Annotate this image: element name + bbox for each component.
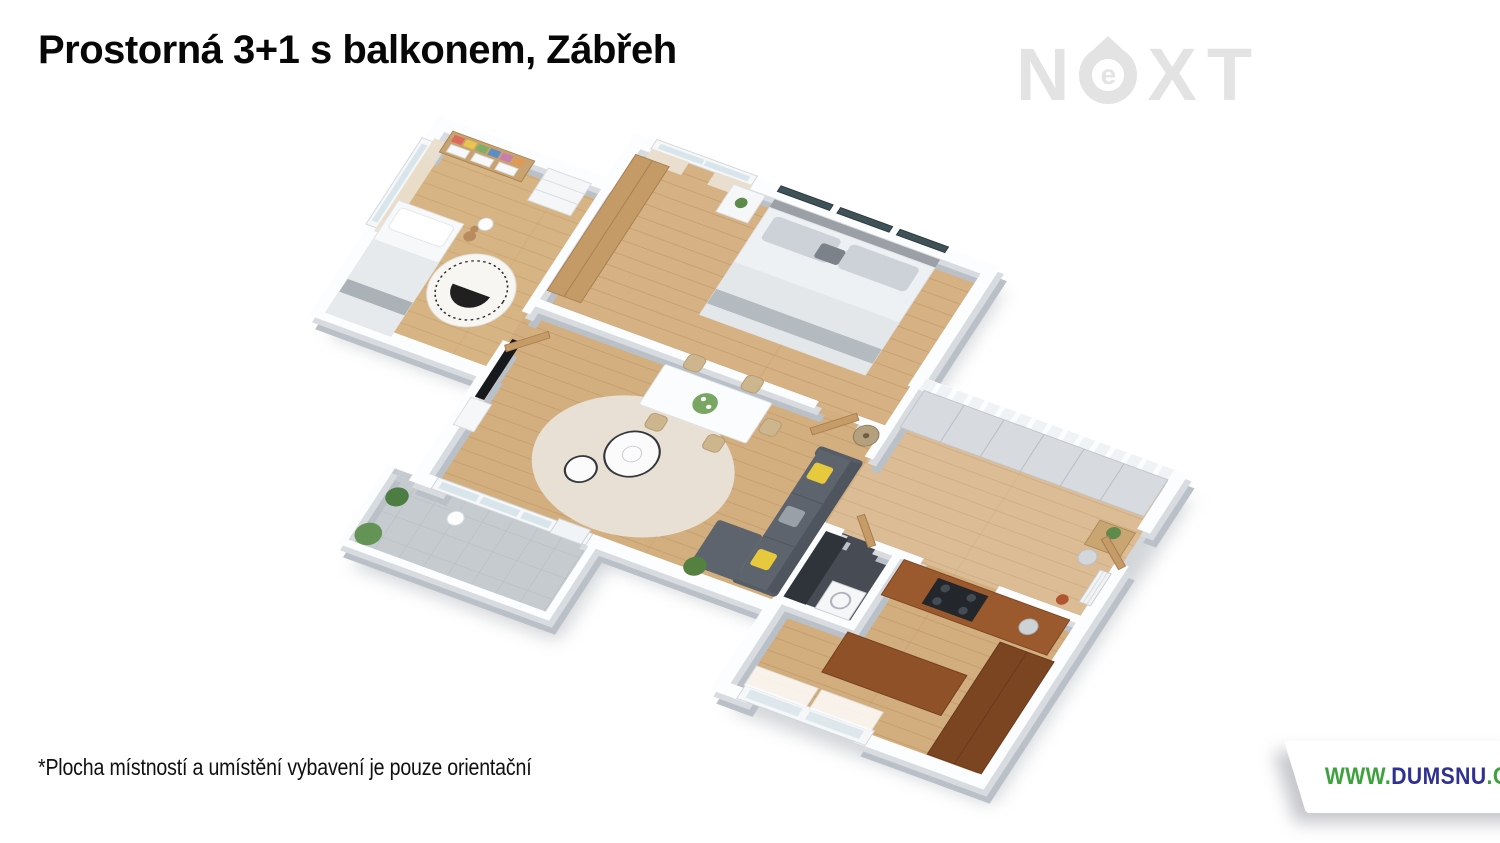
real-estate-floorplan-page: Prostorná 3+1 s balkonem, Zábřeh N e X T (0, 0, 1500, 843)
website-url: WWW.DUMSNU.COM (1295, 741, 1500, 813)
url-suffix: .COM (1487, 763, 1500, 790)
disclaimer-text: *Plocha místností a umístění vybavení je… (38, 754, 531, 781)
url-prefix: WWW. (1325, 763, 1391, 790)
url-banner: WWW.DUMSNU.COM (1284, 741, 1500, 813)
floorplan-render-area (0, 0, 1500, 843)
floorplan-render (0, 0, 1500, 843)
url-name: DUMSNU (1391, 763, 1486, 790)
